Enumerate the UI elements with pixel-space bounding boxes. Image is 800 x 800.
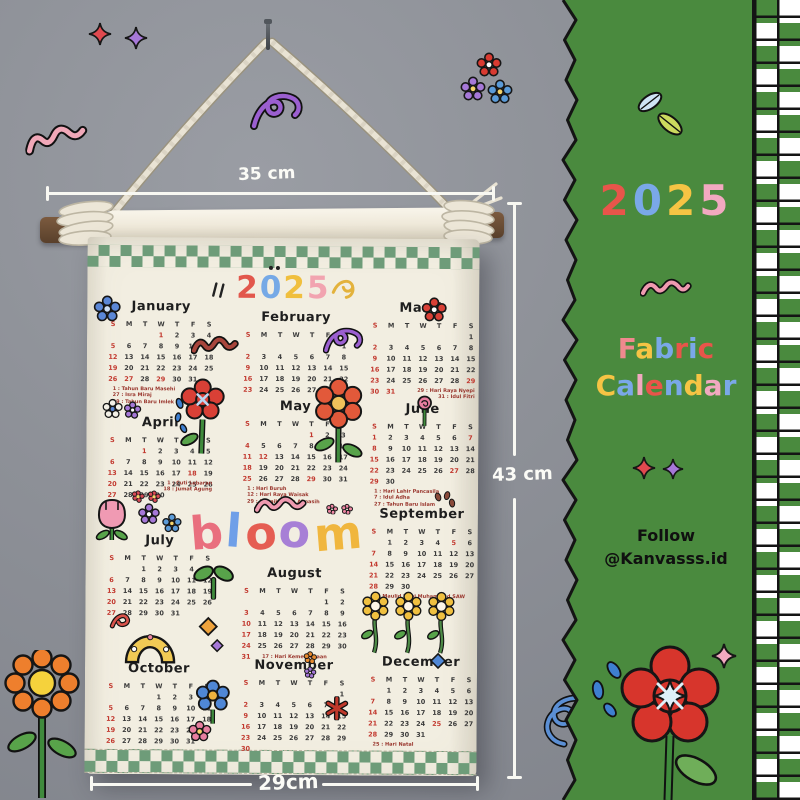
day-cell: 24 xyxy=(398,466,414,477)
dow-cell: S xyxy=(201,320,217,331)
day-cell: 2 xyxy=(398,538,414,549)
day-cell: 29 xyxy=(303,474,319,485)
dow-cell: M xyxy=(256,330,272,341)
day-cell: 19 xyxy=(200,468,216,479)
day-cell: 13 xyxy=(431,354,447,365)
month-grid: SMTWTFS123456789101112131415161718192021… xyxy=(363,674,479,741)
day-cell: 3 xyxy=(414,538,430,549)
day-cell: 12 xyxy=(105,352,121,363)
day-cell: 21 xyxy=(320,374,336,385)
line-cap xyxy=(492,186,495,201)
day-cell: 19 xyxy=(288,374,304,385)
dow-cell: W xyxy=(151,681,167,692)
dow-cell: F xyxy=(445,675,461,686)
day-cell: 23 xyxy=(240,385,256,396)
month-february: FebruarySMTWTFS1234567891011121314151617… xyxy=(238,310,355,397)
day-cell: 5 xyxy=(288,352,304,363)
nail xyxy=(266,22,270,50)
day-cell: 14 xyxy=(120,468,136,479)
day-cell: 24 xyxy=(413,719,429,730)
day-cell: 14 xyxy=(366,560,382,571)
day-cell: 30 xyxy=(167,736,183,747)
day-cell: 31 xyxy=(185,374,201,385)
day-cell: 5 xyxy=(270,608,286,619)
line-cap xyxy=(507,202,522,205)
day-cell: 14 xyxy=(462,444,478,455)
day-cell: 10 xyxy=(413,697,429,708)
line-cap xyxy=(322,783,478,786)
day-cell: 4 xyxy=(430,538,446,549)
sidebar-product-title: Fabric Calendar xyxy=(578,330,754,404)
height-measurement-label: 43 cm xyxy=(492,463,553,486)
dow-cell: W xyxy=(413,675,429,686)
day-cell: 26 xyxy=(286,733,302,744)
day-cell: 26 xyxy=(445,719,461,730)
day-cell: 18 xyxy=(399,365,415,376)
day-cell: 7 xyxy=(302,608,318,619)
day-cell: 21 xyxy=(120,479,136,490)
day-cell: 17 xyxy=(398,455,414,466)
day-cell: 27 xyxy=(461,719,477,730)
day-cell: 15 xyxy=(382,560,398,571)
day-cell: 4 xyxy=(254,608,270,619)
day-cell: 18 xyxy=(430,560,446,571)
dow-cell: F xyxy=(185,319,201,330)
day-cell: 20 xyxy=(304,374,320,385)
day-cell: 7 xyxy=(447,343,463,354)
day-cell: 23 xyxy=(167,725,183,736)
day-cell: 7 xyxy=(462,433,478,444)
day-cell: 10 xyxy=(256,363,272,374)
day-cell: 17 xyxy=(383,365,399,376)
day-cell: 3 xyxy=(185,330,201,341)
day-cell: 30 xyxy=(397,730,413,741)
day-cell: 13 xyxy=(461,697,477,708)
month-grid: SMTWTFS123456789101112131415161718192021… xyxy=(364,422,480,489)
day-cell: 3 xyxy=(398,433,414,444)
day-cell: 3 xyxy=(335,430,351,441)
fabric-calendar: 2025 JanuarySMTWTFS123456789101112131415… xyxy=(84,237,479,776)
day-cell: 19 xyxy=(103,725,119,736)
day-cell: 18 xyxy=(414,455,430,466)
dow-cell: S xyxy=(239,419,255,430)
day-cell: 10 xyxy=(168,575,184,586)
day-cell: 9 xyxy=(167,703,183,714)
day-cell: 29 xyxy=(463,376,479,387)
day-cell: 25 xyxy=(199,725,215,736)
day-cell: 13 xyxy=(103,586,119,597)
day-cell: 5 xyxy=(445,686,461,697)
dow-cell: T xyxy=(430,527,446,538)
dow-cell: W xyxy=(152,435,168,446)
month-title: June xyxy=(365,402,481,423)
day-cell: 23 xyxy=(397,719,413,730)
day-cell: 22 xyxy=(334,722,350,733)
day-cell: 20 xyxy=(271,463,287,474)
day-cell: 13 xyxy=(121,352,137,363)
day-cell: 24 xyxy=(383,376,399,387)
day-cell: 11 xyxy=(430,549,446,560)
day-cell: 5 xyxy=(200,447,216,458)
day-cell: 1 xyxy=(136,564,152,575)
day-cell: 16 xyxy=(167,714,183,725)
day-cell: 20 xyxy=(119,725,135,736)
day-cell: 4 xyxy=(399,343,415,354)
day-cell: 7 xyxy=(120,575,136,586)
day-cell: 2 xyxy=(319,430,335,441)
dow-cell: T xyxy=(398,422,414,433)
day-cell: 4 xyxy=(429,686,445,697)
day-cell: 11 xyxy=(199,703,215,714)
dow-cell: T xyxy=(270,586,286,597)
dow-cell: W xyxy=(153,319,169,330)
month-title: August xyxy=(237,566,353,587)
day-cell: 27 xyxy=(103,608,119,619)
day-cell: 28 xyxy=(318,733,334,744)
day-cell: 28 xyxy=(365,582,381,593)
dow-cell: S xyxy=(366,422,382,433)
day-cell: 11 xyxy=(184,457,200,468)
day-cell: 21 xyxy=(287,463,303,474)
day-cell: 24 xyxy=(335,463,351,474)
day-cell: 12 xyxy=(445,697,461,708)
day-cell: 25 xyxy=(201,364,217,375)
day-cell: 18 xyxy=(429,708,445,719)
day-cell: 29 xyxy=(381,582,397,593)
day-cell: 27 xyxy=(446,466,462,477)
month-title: November xyxy=(236,658,352,679)
day-cell: 15 xyxy=(136,468,152,479)
day-cell: 31 xyxy=(335,474,351,485)
day-cell: 28 xyxy=(120,490,136,501)
day-cell: 26 xyxy=(430,466,446,477)
day-cell: 20 xyxy=(121,363,137,374)
month-grid: SMTWTFS123456789101112131415161718192021… xyxy=(238,330,354,397)
day-cell: 19 xyxy=(446,560,462,571)
day-cell: 8 xyxy=(366,444,382,455)
day-cell: 21 xyxy=(318,722,334,733)
dow-cell: S xyxy=(462,422,478,433)
day-cell: 1 xyxy=(318,597,334,608)
day-cell: 20 xyxy=(104,479,120,490)
line-cap xyxy=(507,776,522,779)
day-cell: 17 xyxy=(238,630,254,641)
day-cell: 17 xyxy=(185,352,201,363)
day-cell: 5 xyxy=(255,441,271,452)
day-cell: 15 xyxy=(153,352,169,363)
day-cell: 2 xyxy=(169,330,185,341)
day-cell: 28 xyxy=(287,474,303,485)
day-cell: 14 xyxy=(119,586,135,597)
day-cell: 29 xyxy=(153,374,169,385)
dow-cell: M xyxy=(382,422,398,433)
dow-cell: T xyxy=(137,319,153,330)
day-cell: 25 xyxy=(239,474,255,485)
day-cell: 1 xyxy=(136,446,152,457)
day-cell: 26 xyxy=(288,385,304,396)
day-cell: 27 xyxy=(302,733,318,744)
month-grid: SMTWTFS123456789101112131415161718192021… xyxy=(235,678,351,756)
day-cell: 22 xyxy=(303,463,319,474)
month-august: AugustSMTWTFS123456789101112131415161718… xyxy=(236,566,353,661)
follow-text: Follow @Kanvasss.id xyxy=(578,524,754,570)
day-cell: 29 xyxy=(135,608,151,619)
day-cell: 6 xyxy=(461,686,477,697)
day-cell: 14 xyxy=(365,708,381,719)
dow-cell: T xyxy=(303,419,319,430)
day-cell: 2 xyxy=(397,686,413,697)
bottom-measurement-label: 29cm xyxy=(258,769,319,795)
day-cell: 2 xyxy=(334,597,350,608)
day-cell: 24 xyxy=(238,641,254,652)
dow-cell: T xyxy=(431,321,447,332)
day-cell: 1 xyxy=(151,692,167,703)
day-cell: 19 xyxy=(105,363,121,374)
day-cell: 18 xyxy=(183,586,199,597)
day-cell: 30 xyxy=(367,387,383,398)
day-cell: 5 xyxy=(200,564,216,575)
dow-cell: W xyxy=(415,321,431,332)
day-cell: 16 xyxy=(397,708,413,719)
day-cell: 30 xyxy=(237,744,253,755)
day-cell: 23 xyxy=(334,630,350,641)
day-cell: 9 xyxy=(152,457,168,468)
day-cell: 6 xyxy=(121,341,137,352)
dow-cell: F xyxy=(447,321,463,332)
month-title: April xyxy=(102,415,218,436)
day-cell: 19 xyxy=(255,463,271,474)
day-cell: 6 xyxy=(431,343,447,354)
day-cell: 11 xyxy=(201,342,217,353)
dow-cell: F xyxy=(446,527,462,538)
day-cell: 10 xyxy=(238,619,254,630)
month-grid: SMTWTFS123456789101112131415161718192021… xyxy=(103,319,219,386)
width-measurement-label: 35 cm xyxy=(238,163,296,185)
day-cell: 27 xyxy=(121,374,137,385)
day-cell: 17 xyxy=(167,586,183,597)
month-grid: SMTWTFS123456789101112131415161718192021… xyxy=(101,553,217,620)
day-cell: 16 xyxy=(238,722,254,733)
dow-cell: T xyxy=(271,419,287,430)
dow-cell: T xyxy=(429,675,445,686)
month-holiday-notes: 1 : Tahun Baru Masehi27 : Isra Miraj29 :… xyxy=(103,386,219,406)
day-cell: 15 xyxy=(318,619,334,630)
day-cell: 1 xyxy=(381,686,397,697)
flower-icon xyxy=(138,503,160,525)
day-cell: 14 xyxy=(137,352,153,363)
day-cell: 7 xyxy=(135,703,151,714)
day-cell: 2 xyxy=(152,564,168,575)
day-cell: 13 xyxy=(271,452,287,463)
day-cell: 8 xyxy=(382,549,398,560)
day-cell: 1 xyxy=(382,538,398,549)
month-june: JuneSMTWTFS12345678910111213141516171819… xyxy=(364,402,481,509)
day-cell: 27 xyxy=(431,376,447,387)
day-cell: 28 xyxy=(365,730,381,741)
day-cell: 19 xyxy=(199,586,215,597)
day-cell: 31 xyxy=(383,387,399,398)
day-cell: 7 xyxy=(287,441,303,452)
day-cell: 16 xyxy=(367,365,383,376)
day-cell: 30 xyxy=(334,641,350,652)
day-cell: 18 xyxy=(239,463,255,474)
day-cell: 12 xyxy=(286,711,302,722)
dow-cell: W xyxy=(287,419,303,430)
day-cell: 14 xyxy=(320,363,336,374)
month-holiday-notes: 1 : Hari Lahir Pancasila7 : Idul Adha27 … xyxy=(364,489,480,509)
dow-cell: S xyxy=(462,527,478,538)
day-cell: 1 xyxy=(334,689,350,700)
day-cell: 19 xyxy=(445,708,461,719)
day-cell: 14 xyxy=(302,619,318,630)
day-cell: 3 xyxy=(238,608,254,619)
dow-cell: S xyxy=(365,675,381,686)
bloom-word: bloom xyxy=(190,503,365,558)
day-cell: 8 xyxy=(303,441,319,452)
day-cell: 21 xyxy=(137,363,153,374)
day-cell: 6 xyxy=(119,703,135,714)
dow-cell: S xyxy=(335,419,351,430)
dow-cell: T xyxy=(272,330,288,341)
day-cell: 12 xyxy=(270,619,286,630)
dow-cell: F xyxy=(183,681,199,692)
month-april: AprilSMTWTFS1234567891011121314151617181… xyxy=(102,415,218,494)
dow-cell: T xyxy=(135,681,151,692)
day-cell: 22 xyxy=(366,466,382,477)
dow-cell: M xyxy=(254,678,270,689)
month-holiday-notes: 25 : Hari Natal xyxy=(363,741,479,748)
height-measurement-line xyxy=(513,204,516,456)
day-cell: 28 xyxy=(447,376,463,387)
dow-cell: W xyxy=(414,422,430,433)
width-measurement-line xyxy=(48,192,494,195)
day-cell: 19 xyxy=(270,630,286,641)
day-cell: 12 xyxy=(430,444,446,455)
dow-cell: M xyxy=(255,419,271,430)
month-title: February xyxy=(238,310,354,331)
day-cell: 28 xyxy=(135,736,151,747)
day-cell: 21 xyxy=(462,455,478,466)
day-cell: 16 xyxy=(334,619,350,630)
day-cell: 20 xyxy=(286,630,302,641)
day-cell: 16 xyxy=(382,455,398,466)
day-cell: 11 xyxy=(414,444,430,455)
day-cell: 22 xyxy=(153,363,169,374)
day-cell: 18 xyxy=(201,353,217,364)
day-cell: 15 xyxy=(366,455,382,466)
day-cell: 4 xyxy=(184,564,200,575)
day-cell: 22 xyxy=(381,719,397,730)
day-cell: 6 xyxy=(104,575,120,586)
day-cell: 10 xyxy=(168,457,184,468)
day-cell: 17 xyxy=(168,468,184,479)
day-cell: 7 xyxy=(137,341,153,352)
day-cell: 7 xyxy=(318,700,334,711)
day-cell: 7 xyxy=(320,352,336,363)
dow-cell: W xyxy=(152,553,168,564)
day-cell: 18 xyxy=(199,714,215,725)
day-cell: 17 xyxy=(335,452,351,463)
day-cell: 17 xyxy=(414,560,430,571)
day-cell: 3 xyxy=(256,352,272,363)
day-cell: 5 xyxy=(286,700,302,711)
day-cell: 27 xyxy=(104,490,120,501)
day-cell: 25 xyxy=(272,385,288,396)
day-cell: 14 xyxy=(135,714,151,725)
day-cell: 7 xyxy=(120,457,136,468)
day-cell: 21 xyxy=(135,725,151,736)
day-cell: 23 xyxy=(151,597,167,608)
dow-cell: T xyxy=(304,330,320,341)
day-cell: 13 xyxy=(286,619,302,630)
day-cell: 5 xyxy=(430,433,446,444)
day-cell: 23 xyxy=(398,571,414,582)
day-cell: 10 xyxy=(335,441,351,452)
day-cell: 8 xyxy=(136,457,152,468)
day-cell: 6 xyxy=(302,700,318,711)
dow-cell: T xyxy=(168,435,184,446)
day-cell: 29 xyxy=(334,733,350,744)
day-cell: 11 xyxy=(429,697,445,708)
day-cell: 4 xyxy=(199,692,215,703)
day-cell: 20 xyxy=(446,455,462,466)
day-cell: 26 xyxy=(105,374,121,385)
day-cell: 11 xyxy=(272,363,288,374)
day-cell: 15 xyxy=(336,363,352,374)
dow-cell: T xyxy=(169,319,185,330)
day-cell: 27 xyxy=(271,474,287,485)
day-cell: 18 xyxy=(184,468,200,479)
month-holiday-notes: 5 : Maulid Nabi Muhammad SAW xyxy=(363,593,479,600)
dow-cell: S xyxy=(238,678,254,689)
day-cell: 24 xyxy=(185,363,201,374)
day-cell: 19 xyxy=(415,365,431,376)
day-cell: 6 xyxy=(462,538,478,549)
wooden-dowel-tip xyxy=(462,212,504,238)
day-cell: 30 xyxy=(397,582,413,593)
dow-cell: M xyxy=(121,319,137,330)
day-cell: 26 xyxy=(446,571,462,582)
day-cell: 28 xyxy=(302,641,318,652)
day-cell: 19 xyxy=(430,455,446,466)
dow-cell: W xyxy=(414,527,430,538)
day-cell: 22 xyxy=(135,597,151,608)
day-cell: 4 xyxy=(239,441,255,452)
dow-cell: M xyxy=(254,586,270,597)
sidebar-title-line1: Fabric xyxy=(578,330,754,367)
day-cell: 11 xyxy=(254,619,270,630)
day-cell: 28 xyxy=(119,608,135,619)
day-cell: 26 xyxy=(255,474,271,485)
day-cell: 24 xyxy=(414,571,430,582)
day-cell: 3 xyxy=(168,564,184,575)
day-cell: 16 xyxy=(240,374,256,385)
day-cell: 15 xyxy=(303,452,319,463)
line-cap xyxy=(46,186,49,201)
dow-cell: W xyxy=(286,678,302,689)
day-cell: 24 xyxy=(183,725,199,736)
day-cell: 30 xyxy=(169,374,185,385)
day-cell: 5 xyxy=(103,703,119,714)
month-grid: SMTWTFS123456789101112131415161718192021… xyxy=(237,419,353,486)
day-cell: 7 xyxy=(365,697,381,708)
dow-cell: F xyxy=(446,422,462,433)
day-cell: 31 xyxy=(413,730,429,741)
day-cell: 9 xyxy=(367,354,383,365)
month-grid: SMTWTFS123456789101112131415161718192021… xyxy=(365,321,481,399)
day-cell: 23 xyxy=(382,466,398,477)
day-cell: 10 xyxy=(183,703,199,714)
